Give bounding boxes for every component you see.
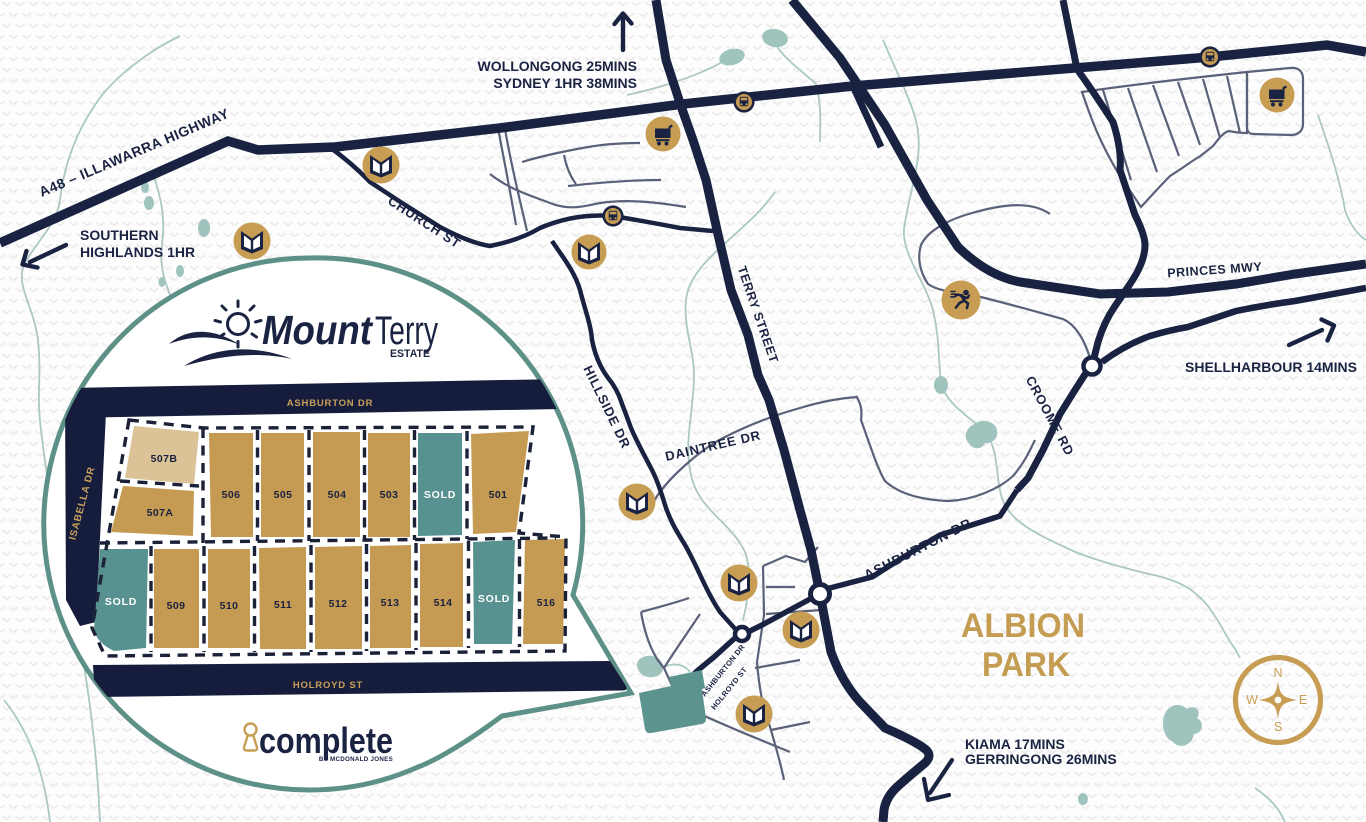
- svg-text:ALBION: ALBION: [961, 607, 1085, 645]
- svg-text:510: 510: [220, 600, 239, 612]
- svg-text:513: 513: [381, 597, 400, 609]
- svg-text:WOLLONGONG 25MINS: WOLLONGONG 25MINS: [478, 58, 637, 74]
- svg-text:SOLD: SOLD: [105, 596, 137, 608]
- svg-text:HIGHLANDS 1HR: HIGHLANDS 1HR: [80, 244, 195, 260]
- svg-text:Terry: Terry: [375, 309, 438, 353]
- svg-text:507B: 507B: [151, 453, 178, 465]
- svg-text:HOLROYD ST: HOLROYD ST: [293, 680, 363, 691]
- svg-text:SOUTHERN: SOUTHERN: [80, 227, 159, 243]
- svg-text:511: 511: [274, 599, 292, 611]
- svg-text:SOLD: SOLD: [478, 593, 510, 605]
- svg-text:507A: 507A: [147, 507, 174, 519]
- svg-text:501: 501: [489, 489, 508, 501]
- svg-text:SYDNEY 1HR 38MINS: SYDNEY 1HR 38MINS: [493, 75, 637, 91]
- svg-text:E: E: [1299, 693, 1307, 707]
- svg-text:ASHBURTON DR: ASHBURTON DR: [287, 398, 373, 409]
- svg-text:ESTATE: ESTATE: [390, 348, 430, 360]
- svg-text:503: 503: [380, 489, 399, 501]
- svg-text:complete: complete: [259, 720, 393, 761]
- svg-text:505: 505: [274, 489, 293, 501]
- svg-text:KIAMA 17MINS: KIAMA 17MINS: [965, 736, 1065, 752]
- svg-text:PARK: PARK: [982, 646, 1070, 684]
- svg-text:509: 509: [167, 600, 186, 612]
- svg-text:506: 506: [222, 489, 241, 501]
- svg-text:516: 516: [537, 597, 556, 609]
- svg-text:514: 514: [434, 597, 453, 609]
- svg-text:BY MCDONALD JONES: BY MCDONALD JONES: [319, 756, 393, 763]
- svg-text:Mount: Mount: [262, 307, 374, 353]
- svg-text:N: N: [1273, 666, 1282, 680]
- svg-text:512: 512: [329, 598, 348, 610]
- svg-text:SOLD: SOLD: [424, 489, 456, 501]
- svg-text:GERRINGONG 26MINS: GERRINGONG 26MINS: [965, 751, 1117, 767]
- svg-text:504: 504: [328, 489, 347, 501]
- svg-text:S: S: [1274, 720, 1282, 734]
- svg-text:SHELLHARBOUR 14MINS: SHELLHARBOUR 14MINS: [1185, 359, 1357, 375]
- svg-text:W: W: [1246, 693, 1258, 707]
